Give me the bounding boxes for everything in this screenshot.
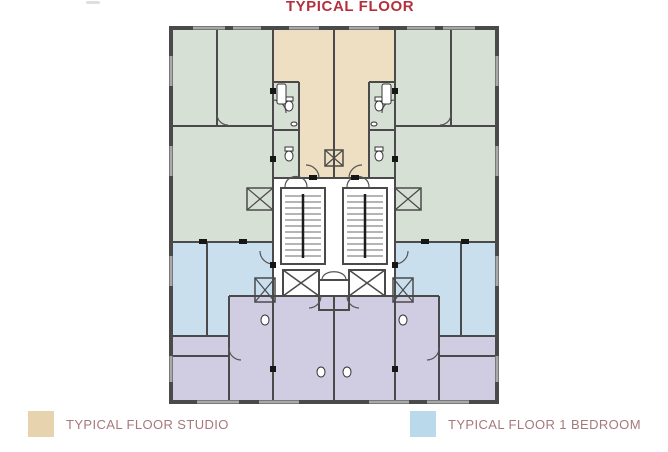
floor-plan-drawing [169,26,499,404]
one-bedroom-legend-label: TYPICAL FLOOR 1 BEDROOM [448,417,641,432]
page-title: TYPICAL FLOOR [247,0,453,15]
studio-color-swatch [28,411,54,437]
one-bedroom-color-swatch [410,411,436,437]
legend-item-studio: TYPICAL FLOOR STUDIO [28,411,229,437]
stray-mark [86,1,100,4]
floor-plan [169,26,499,404]
legend-item-one-bedroom: TYPICAL FLOOR 1 BEDROOM [410,411,641,437]
page: TYPICAL FLOOR [0,0,668,452]
studio-legend-label: TYPICAL FLOOR STUDIO [66,417,229,432]
